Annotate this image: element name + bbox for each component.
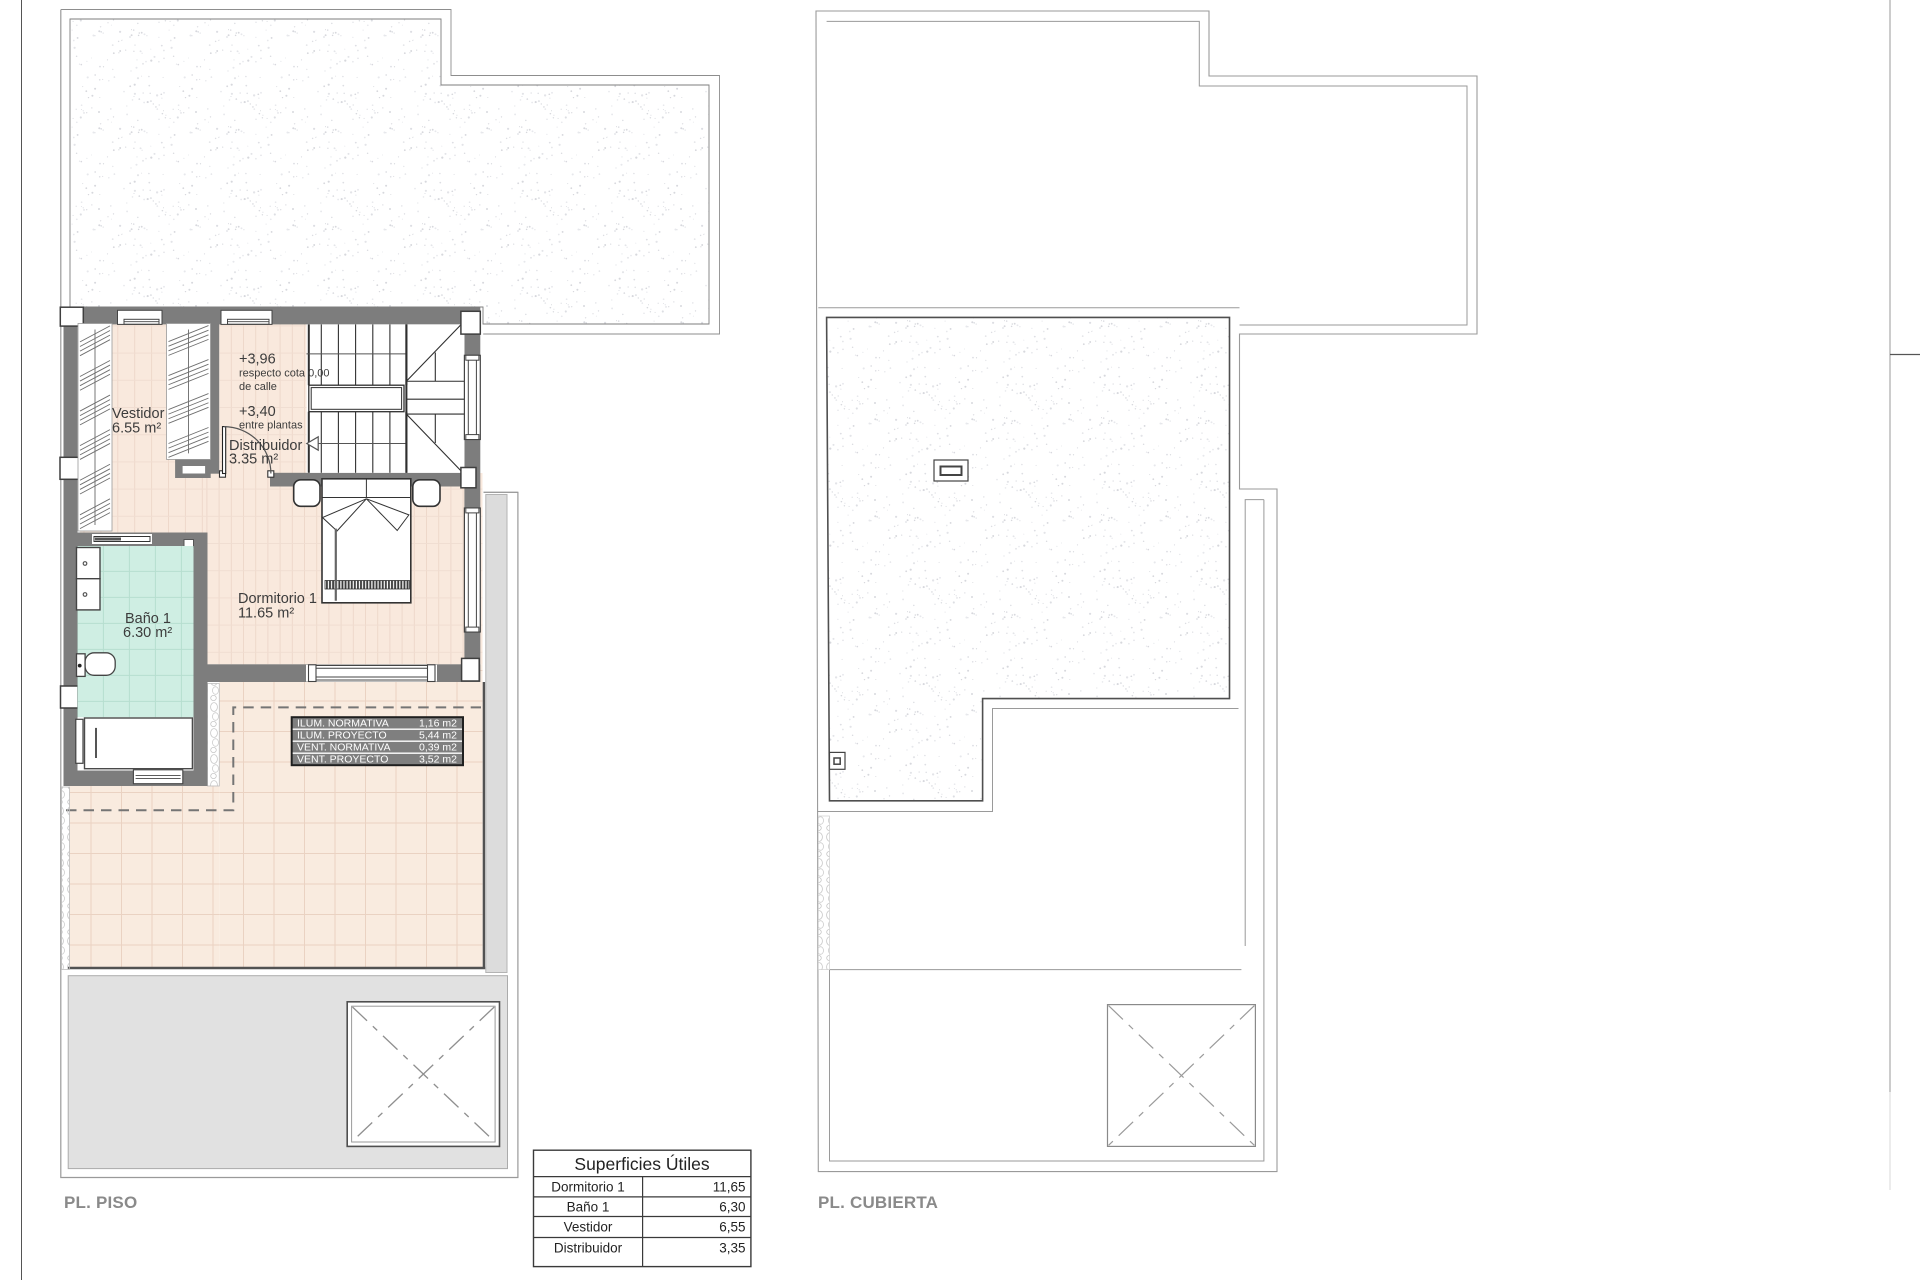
svg-text:Baño 1: Baño 1 (567, 1199, 610, 1214)
svg-text:Superficies Útiles: Superficies Útiles (574, 1153, 709, 1174)
svg-text:0,39 m2: 0,39 m2 (419, 741, 457, 753)
svg-text:3,35: 3,35 (719, 1241, 745, 1256)
svg-text:11,65: 11,65 (713, 1180, 746, 1195)
svg-text:respecto cota 0,00: respecto cota 0,00 (239, 368, 330, 380)
svg-text:VENT. NORMATIVA: VENT. NORMATIVA (297, 741, 391, 753)
svg-text:Distribuidor: Distribuidor (554, 1241, 623, 1256)
svg-text:6,30: 6,30 (719, 1199, 745, 1214)
svg-text:Dormitorio 1: Dormitorio 1 (551, 1180, 625, 1195)
svg-text:+3,96: +3,96 (239, 352, 276, 368)
svg-text:+3,40: +3,40 (239, 404, 276, 420)
svg-text:Vestidor: Vestidor (564, 1220, 613, 1235)
svg-text:entre plantas: entre plantas (239, 420, 303, 432)
svg-text:ILUM. NORMATIVA: ILUM. NORMATIVA (297, 717, 389, 729)
svg-text:de calle: de calle (239, 381, 277, 393)
svg-text:6,55: 6,55 (719, 1220, 745, 1235)
svg-text:6.30 m²: 6.30 m² (123, 625, 172, 641)
svg-text:3.35 m²: 3.35 m² (229, 452, 278, 468)
svg-text:3,52 m2: 3,52 m2 (419, 753, 457, 765)
svg-text:PL. CUBIERTA: PL. CUBIERTA (818, 1193, 938, 1212)
svg-text:5,44 m2: 5,44 m2 (419, 729, 457, 741)
svg-text:11.65 m²: 11.65 m² (238, 606, 294, 622)
svg-text:6.55 m²: 6.55 m² (112, 421, 161, 437)
svg-text:1,16 m2: 1,16 m2 (419, 717, 457, 729)
svg-text:ILUM. PROYECTO: ILUM. PROYECTO (297, 729, 387, 741)
svg-text:VENT. PROYECTO: VENT. PROYECTO (297, 753, 388, 765)
svg-text:PL. PISO: PL. PISO (64, 1193, 137, 1212)
